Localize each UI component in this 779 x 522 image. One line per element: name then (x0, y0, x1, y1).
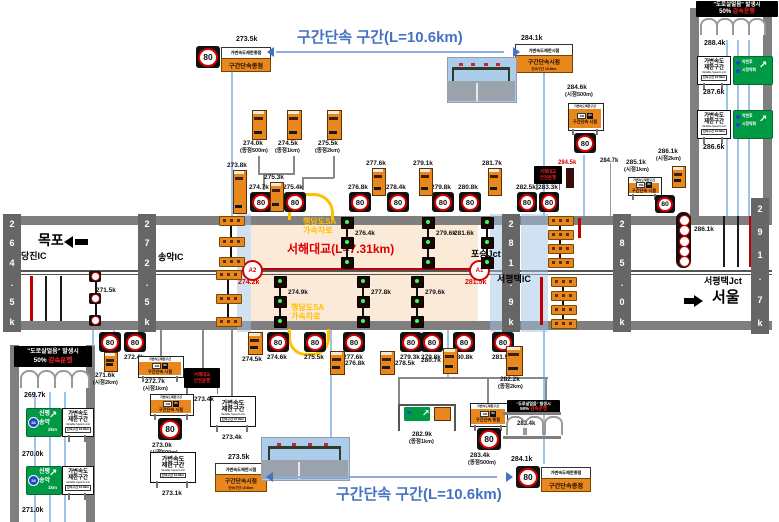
speed-80-roundel: 80 (101, 334, 119, 351)
speed-limit-80-sign: 80 (517, 192, 537, 212)
chainage-label: 282.5k (516, 184, 536, 191)
speed-80-roundel: 80 (252, 194, 270, 211)
road-label-seoul: 서울 (712, 290, 740, 307)
sign-post (216, 425, 218, 432)
gantry-dot (569, 280, 572, 283)
gantry-dot (552, 233, 555, 236)
gantry-dot (220, 297, 223, 300)
sign-glyph (382, 366, 390, 369)
guide-line (160, 330, 162, 356)
chainage-label: 273.4k (194, 396, 214, 403)
ic-bar-char: . (621, 278, 624, 288)
gantry-dot (237, 240, 240, 243)
vsl-sign-line: 단속구간 10.6km (160, 473, 186, 478)
photo-sign-dot (496, 63, 500, 66)
mini-80-sign (89, 315, 101, 326)
sign-header-strip (381, 352, 392, 355)
chainage-label: (종점1km) (275, 148, 300, 154)
speed-80-roundel: 80 (518, 468, 538, 487)
led-green-dot (485, 260, 489, 264)
ic-bar-char: k (508, 317, 513, 327)
chainage-label: 283.4k (470, 452, 490, 459)
ic-bar-char: 9 (508, 297, 513, 307)
speed-limit-80-sign: 80 (421, 332, 443, 352)
guide-line (487, 378, 489, 403)
road-edge (503, 412, 561, 415)
section-start-text: 구간단속시점 (225, 476, 257, 485)
speed-limit-80-sign: 80 (574, 133, 596, 153)
ic-bar-char: . (11, 278, 14, 288)
sign-header-strip (234, 171, 244, 174)
ice-sign-text: 50% (520, 406, 530, 411)
led-green-dot (278, 299, 282, 303)
led-green-dot (278, 319, 282, 323)
gantry-dot (227, 320, 230, 323)
sign-header-strip (673, 167, 683, 170)
led-green-dot (426, 240, 430, 244)
led-green-dot (345, 240, 349, 244)
section-point-text: 구간단속 시점 (159, 407, 183, 413)
ic-bar-char: . (146, 278, 149, 288)
sign-header-strip (288, 111, 299, 114)
led-text-line: 안전운행 (194, 378, 210, 384)
arrowhead-left (267, 47, 274, 57)
sign-glyph (329, 117, 338, 120)
speed-limit-80-sign: 80 (400, 332, 422, 352)
photo-gantry-leg (508, 67, 510, 82)
sign-glyph (106, 359, 114, 362)
photo-sign-dot (484, 63, 488, 66)
speed-limit-80-sign: 80 (477, 428, 501, 450)
speed-limit-80-sign: 80 (516, 466, 540, 488)
variable-speed-notice-sign (252, 110, 267, 140)
chainage-label: 284.5k (558, 160, 576, 167)
speed-80-roundel: 80 (306, 334, 324, 351)
chainage-label: 270.0k (22, 451, 43, 459)
guide-line (737, 216, 739, 267)
speed-80-roundel: 80 (402, 334, 420, 351)
speed-limit-80-sign: 80 (432, 192, 454, 212)
gantry-dot (559, 233, 562, 236)
condition-dot (736, 123, 740, 127)
speed-limit-80-sign: 80 (250, 192, 272, 212)
sign-glyph (508, 353, 519, 356)
chainage-label: 274.6k (267, 354, 287, 361)
led-green-dot (426, 260, 430, 264)
vsl-sign-line: 단속구간 10.6km (65, 485, 91, 490)
ic-bar-char: 2 (757, 204, 762, 214)
sa-label: 행담도SA 가속차로 (291, 304, 324, 322)
condition-dot (407, 411, 411, 414)
chainage-label: 284.6k (567, 84, 587, 91)
arrowhead-left (266, 472, 273, 482)
chainage-label: 273.8k (227, 162, 247, 169)
gantry-dot (555, 280, 558, 283)
speed-80-roundel: 80 (269, 334, 287, 351)
photo-lane-line (476, 83, 478, 101)
bridge-arch (748, 18, 766, 35)
ic-bar-char: 7 (757, 295, 762, 305)
ice-sign-text: 감속운행 (733, 9, 755, 15)
sign-glyph (490, 175, 498, 178)
photo-sign-dot (277, 443, 281, 446)
ic-bar-char: 2 (619, 219, 624, 229)
section-point-text: 구간단속 시점 (573, 119, 597, 125)
variable-speed-notice-sign (287, 110, 302, 140)
section-end-plate: 구간단속종점 (541, 478, 591, 492)
gantry-dot (562, 308, 565, 311)
variable-speed-notice-sign (434, 407, 451, 421)
gantry-dot (223, 240, 226, 243)
arrowhead-right (694, 295, 703, 307)
ice-sign-text: 50% 감속운행 (719, 9, 755, 16)
sign-body: 10080구간단속 시점 (569, 109, 601, 128)
gantry-dot (227, 273, 230, 276)
chainage-label: 287.6k (703, 89, 724, 97)
variable-speed-limit-sign: 가변속도제한구간Variable Speed Limit단속구간 10.6km (210, 396, 256, 427)
variable-speed-notice-sign (506, 346, 523, 376)
sign-glyph (272, 189, 280, 192)
condition-label: 악천후 (742, 114, 752, 118)
photo-gantry (452, 67, 509, 70)
median-pole-label: 279.6k (425, 289, 445, 296)
ic-bar-char: 6 (9, 238, 14, 248)
gantry-dot (562, 280, 565, 283)
sign-glyph (329, 131, 337, 134)
road-edge (10, 345, 19, 522)
chainage-label: (시점1km) (624, 167, 649, 173)
chainage-label: 274.5k (242, 356, 262, 363)
gantry-dot (220, 320, 223, 323)
gantry-dot (562, 294, 565, 297)
mini-80-roundel (91, 294, 100, 303)
road-label-sp_ic: 서평택IC (497, 274, 531, 284)
section-length-text: 단속구간 10.6km (532, 66, 557, 71)
section-length-text: 단속구간 10.6km (229, 485, 254, 490)
sign-post (186, 414, 188, 420)
photo-sign-dot (471, 63, 475, 66)
ic-chainage-bar: 291.7k (751, 198, 769, 334)
arrowhead-right (513, 47, 520, 57)
median-line (3, 274, 772, 276)
sign-post (156, 481, 158, 488)
speed-limit-80-sign: 80 (196, 46, 220, 68)
sign-glyph (674, 173, 682, 176)
median-pole-label: 279.6k (436, 230, 456, 237)
chainage-label: (종점1km) (409, 439, 434, 445)
chainage-label: (시점500m) (565, 92, 593, 98)
sign-post (176, 376, 178, 382)
bridge-arch (544, 416, 563, 435)
sign-glyph (374, 175, 382, 178)
chainage-label: 278.4k (386, 184, 406, 191)
section-title-top: 구간단속 구간(L=10.6km) (297, 26, 463, 47)
sign-glyph (421, 187, 428, 190)
sign-glyph (374, 187, 381, 190)
guide-line (258, 156, 260, 174)
variable-speed-notice-sign (327, 110, 342, 140)
distance-label: 1km (48, 485, 57, 490)
ic-bar-char: 1 (508, 258, 513, 268)
guide-line (92, 330, 94, 346)
sign-glyph (421, 175, 429, 178)
bridge-point-km-label: 274.2k (238, 279, 259, 287)
section-span-line (275, 476, 497, 478)
road-edge (3, 216, 772, 225)
chainage-label: 283.4k (517, 421, 535, 428)
gantry-frame (398, 404, 456, 406)
sign-glyph (254, 131, 262, 134)
ic-bar-char: 8 (508, 238, 513, 248)
variable-speed-limit-sign: 가변속도제한구간Variable Speed Limit단속구간 10.6km (150, 452, 196, 483)
chainage-label: (시점2km) (656, 156, 681, 162)
photo-sign-dot (459, 63, 463, 66)
sign-body: 10080구간단속 종점 (471, 409, 505, 424)
condition-label: 악천후 (742, 60, 752, 64)
led-green-dot (426, 220, 430, 224)
gantry-dot (552, 247, 555, 250)
road-edge (503, 436, 561, 439)
sign-header-strip (489, 169, 499, 172)
guide-line (723, 216, 725, 267)
variable-speed-notice-sign (488, 168, 502, 196)
distance-label: 2km (48, 427, 57, 432)
speed-80-roundel: 80 (576, 135, 594, 152)
route-38-shield: 38 (28, 475, 39, 486)
chainage-label: 286.6k (703, 144, 724, 152)
black-ice-warning-sign: "도로살얼음" 발생시50% 감속운행 (14, 346, 92, 367)
chainage-label: 274.7k (249, 184, 269, 191)
gantry-dot (227, 297, 230, 300)
sign-glyph (250, 346, 258, 349)
gantry-dot (566, 261, 569, 264)
led-green-dot (361, 279, 365, 283)
highway-section-control-diagram: 구간단속 구간(L=10.6km) 구간단속 구간(L=10.6km) 서해대교… (0, 0, 779, 522)
led-green-dot (415, 319, 419, 323)
section-span-line (276, 51, 504, 53)
section-sign-km-label: 284.1k (511, 456, 532, 464)
sign-glyph (332, 366, 340, 369)
bridge-span-arrow (259, 268, 470, 270)
ic-chainage-bar: 272.5k (138, 214, 156, 332)
sa-label: 행담도SA 가속차로 (303, 218, 336, 236)
ic-bar-char: 1 (757, 250, 762, 260)
chainage-label: 280.7k (421, 357, 441, 364)
speed-limit-80-sign: 80 (158, 418, 182, 440)
sign-glyph (490, 187, 497, 190)
condition-dot (736, 61, 740, 65)
guide-line (333, 156, 335, 178)
chainage-label: 280.8k (458, 184, 478, 191)
ic-bar-char: 7 (144, 238, 149, 248)
ic-chainage-bar: 285.0k (613, 214, 631, 332)
speed-limit-80-sign: 80 (387, 192, 409, 212)
median-line (3, 270, 772, 272)
guide-line (45, 276, 47, 321)
gantry-dot (230, 240, 233, 243)
sign-body: 10080구간단속 시점 (139, 362, 181, 375)
mokpo-arrow-shaft (75, 239, 88, 245)
speed-limit-80-sign: 80 (284, 192, 306, 212)
condition-dot (736, 115, 740, 119)
speed-80-roundel: 80 (541, 194, 557, 211)
ic-bar-char: 0 (619, 297, 624, 307)
road-label-songak: 송악IC (158, 252, 184, 262)
variable-speed-notice-sign (270, 182, 284, 212)
chainage-label: 279.8k (431, 184, 451, 191)
enforcement-band (521, 214, 548, 332)
photo-road (447, 81, 515, 101)
photo-gantry-leg (339, 446, 341, 460)
ic-bar-char: 2 (144, 258, 149, 268)
speed-80-roundel: 80 (657, 197, 673, 212)
sign-header-strip (507, 347, 520, 350)
gantry-dot (223, 219, 226, 222)
ice-sign-text: 감속운행 (530, 406, 547, 411)
route-38-shield: 38 (28, 417, 39, 428)
led-green-dot (345, 220, 349, 224)
vsl-sign-line: 단속구간 10.6km (701, 129, 727, 134)
chainage-label: 283.3k (538, 184, 558, 191)
median-pole-label: 276.4k (355, 230, 375, 237)
speed-80-roundel: 80 (461, 194, 479, 211)
variable-speed-notice-sign (419, 168, 433, 196)
speed-80-roundel: 80 (389, 194, 407, 211)
sign-post (68, 493, 70, 500)
section-start-plate: 구간단속시점단속구간 10.6km (215, 474, 267, 492)
sign-glyph (445, 365, 453, 368)
chainage-label: (시점2km) (93, 380, 118, 386)
sign-post (142, 376, 144, 382)
chainage-label: (종점500m) (468, 460, 496, 466)
sign-glyph (272, 203, 279, 206)
photo-sign-dot (324, 443, 328, 446)
sign-post (596, 129, 598, 135)
speed-limit-80-sign: 80 (124, 332, 146, 352)
sign-glyph (235, 205, 242, 208)
guide-line (540, 277, 543, 325)
mini-80-roundel (91, 272, 100, 281)
road-label-sp_jct: 서평택Jct (704, 276, 742, 286)
speed-80-roundel: 80 (519, 194, 535, 211)
ramp-arrow-icon: ↗ (422, 408, 430, 418)
chainage-label: 274.0k (243, 140, 263, 147)
gantry-dot (569, 308, 572, 311)
arrowhead-right (506, 472, 513, 482)
condition-dot (736, 69, 740, 73)
vsl-sign-line: 단속구간 10.6km (220, 417, 246, 422)
ic-bar-char: 8 (619, 238, 624, 248)
sign-glyph (332, 358, 341, 361)
sign-glyph (106, 363, 113, 366)
photo-gantry (268, 446, 341, 449)
led-green-dot (415, 299, 419, 303)
speed-limit-80-sign: 80 (539, 192, 559, 212)
sign-header-strip (253, 111, 264, 114)
vsl-sign-line: 단속구간 10.6km (65, 427, 91, 432)
vsl-sign-line: 단속구간 10.6km (701, 75, 727, 80)
sign-header-strip (444, 349, 455, 352)
chainage-label: 288.4k (704, 40, 725, 48)
gantry-dot (559, 247, 562, 250)
chainage-label: 276.8k (345, 360, 365, 367)
speed-80-roundel: 80 (160, 420, 180, 439)
led-green-dot (345, 260, 349, 264)
ice-sign-text: 50% (34, 357, 49, 364)
sign-header-strip (249, 333, 260, 336)
sign-body: 10080구간단속 시점 (151, 400, 191, 413)
sign-body: 10080구간단속 시점 (629, 183, 659, 193)
gantry-dot (569, 322, 572, 325)
led-warning-sign: 서해대교안전운행 (534, 166, 562, 184)
bridge-arch (71, 370, 90, 388)
sign-glyph (445, 355, 454, 358)
sign-glyph (235, 177, 243, 180)
ramp-arrow-icon: ↗ (759, 114, 767, 125)
gantry-dot (552, 219, 555, 222)
gantry-dot (552, 261, 555, 264)
speed-limit-80-sign: 80 (267, 332, 289, 352)
ic-bar-char: k (144, 317, 149, 327)
median-pole-label: 281.6k (454, 230, 474, 237)
sign-post (721, 137, 723, 144)
speed-80-roundel: 80 (198, 48, 218, 67)
gantry-leg (398, 404, 400, 431)
sign-post (186, 388, 188, 394)
speed-limit-80-sign: 80 (459, 192, 481, 212)
led-text-line: 안전운행 (540, 175, 556, 181)
chainage-label: 275.5k (304, 354, 324, 361)
sign-post (246, 425, 248, 432)
guide-line (398, 377, 548, 379)
road-label-dangjin: 당진IC (21, 251, 47, 261)
chainage-label: 282.2k (500, 376, 520, 383)
section-end-plate: 구간단속종점 (221, 58, 271, 72)
gantry-dot (220, 273, 223, 276)
ramp-arrow-icon: ↗ (49, 410, 57, 421)
gantry-dot (230, 260, 233, 263)
sign-header-strip (420, 169, 430, 172)
chainage-label: 274.5k (278, 140, 298, 147)
ic-bar-char: 4 (9, 258, 14, 268)
led-green-dot (361, 299, 365, 303)
variable-speed-limit-sign: 가변속도제한구간Variable Speed Limit단속구간 10.6km (697, 110, 731, 139)
chainage-label: 281.7k (482, 160, 502, 167)
chainage-label: 271.5k (96, 287, 116, 294)
chainage-label: 286.1k (658, 148, 678, 155)
sign-glyph (508, 367, 518, 370)
chainage-label: 275.3k (264, 174, 284, 181)
guide-line (610, 163, 611, 216)
speed-limit-80-sign: 80 (304, 332, 326, 352)
condition-label: 시정악화 (742, 122, 756, 126)
speed-limit-80-sign: 80 (655, 195, 675, 213)
chainage-label: 286.1k (694, 226, 714, 233)
ramp-arrow-icon: ↗ (49, 468, 57, 479)
gantry-dot (559, 261, 562, 264)
sign-post (474, 425, 476, 431)
ic-bar-char: 5 (144, 297, 149, 307)
chainage-label: 273.1k (162, 490, 182, 497)
chainage-label: 284.7k (600, 158, 618, 165)
chainage-label: (종점2km) (315, 148, 340, 154)
chainage-label: 277.6k (366, 160, 386, 167)
guide-line (60, 276, 62, 321)
road-label-mokpo: 목포 (38, 233, 64, 249)
chainage-label: (종점2km) (498, 384, 523, 390)
chainage-label: 285.1k (626, 159, 646, 166)
led-green-dot (278, 279, 282, 283)
